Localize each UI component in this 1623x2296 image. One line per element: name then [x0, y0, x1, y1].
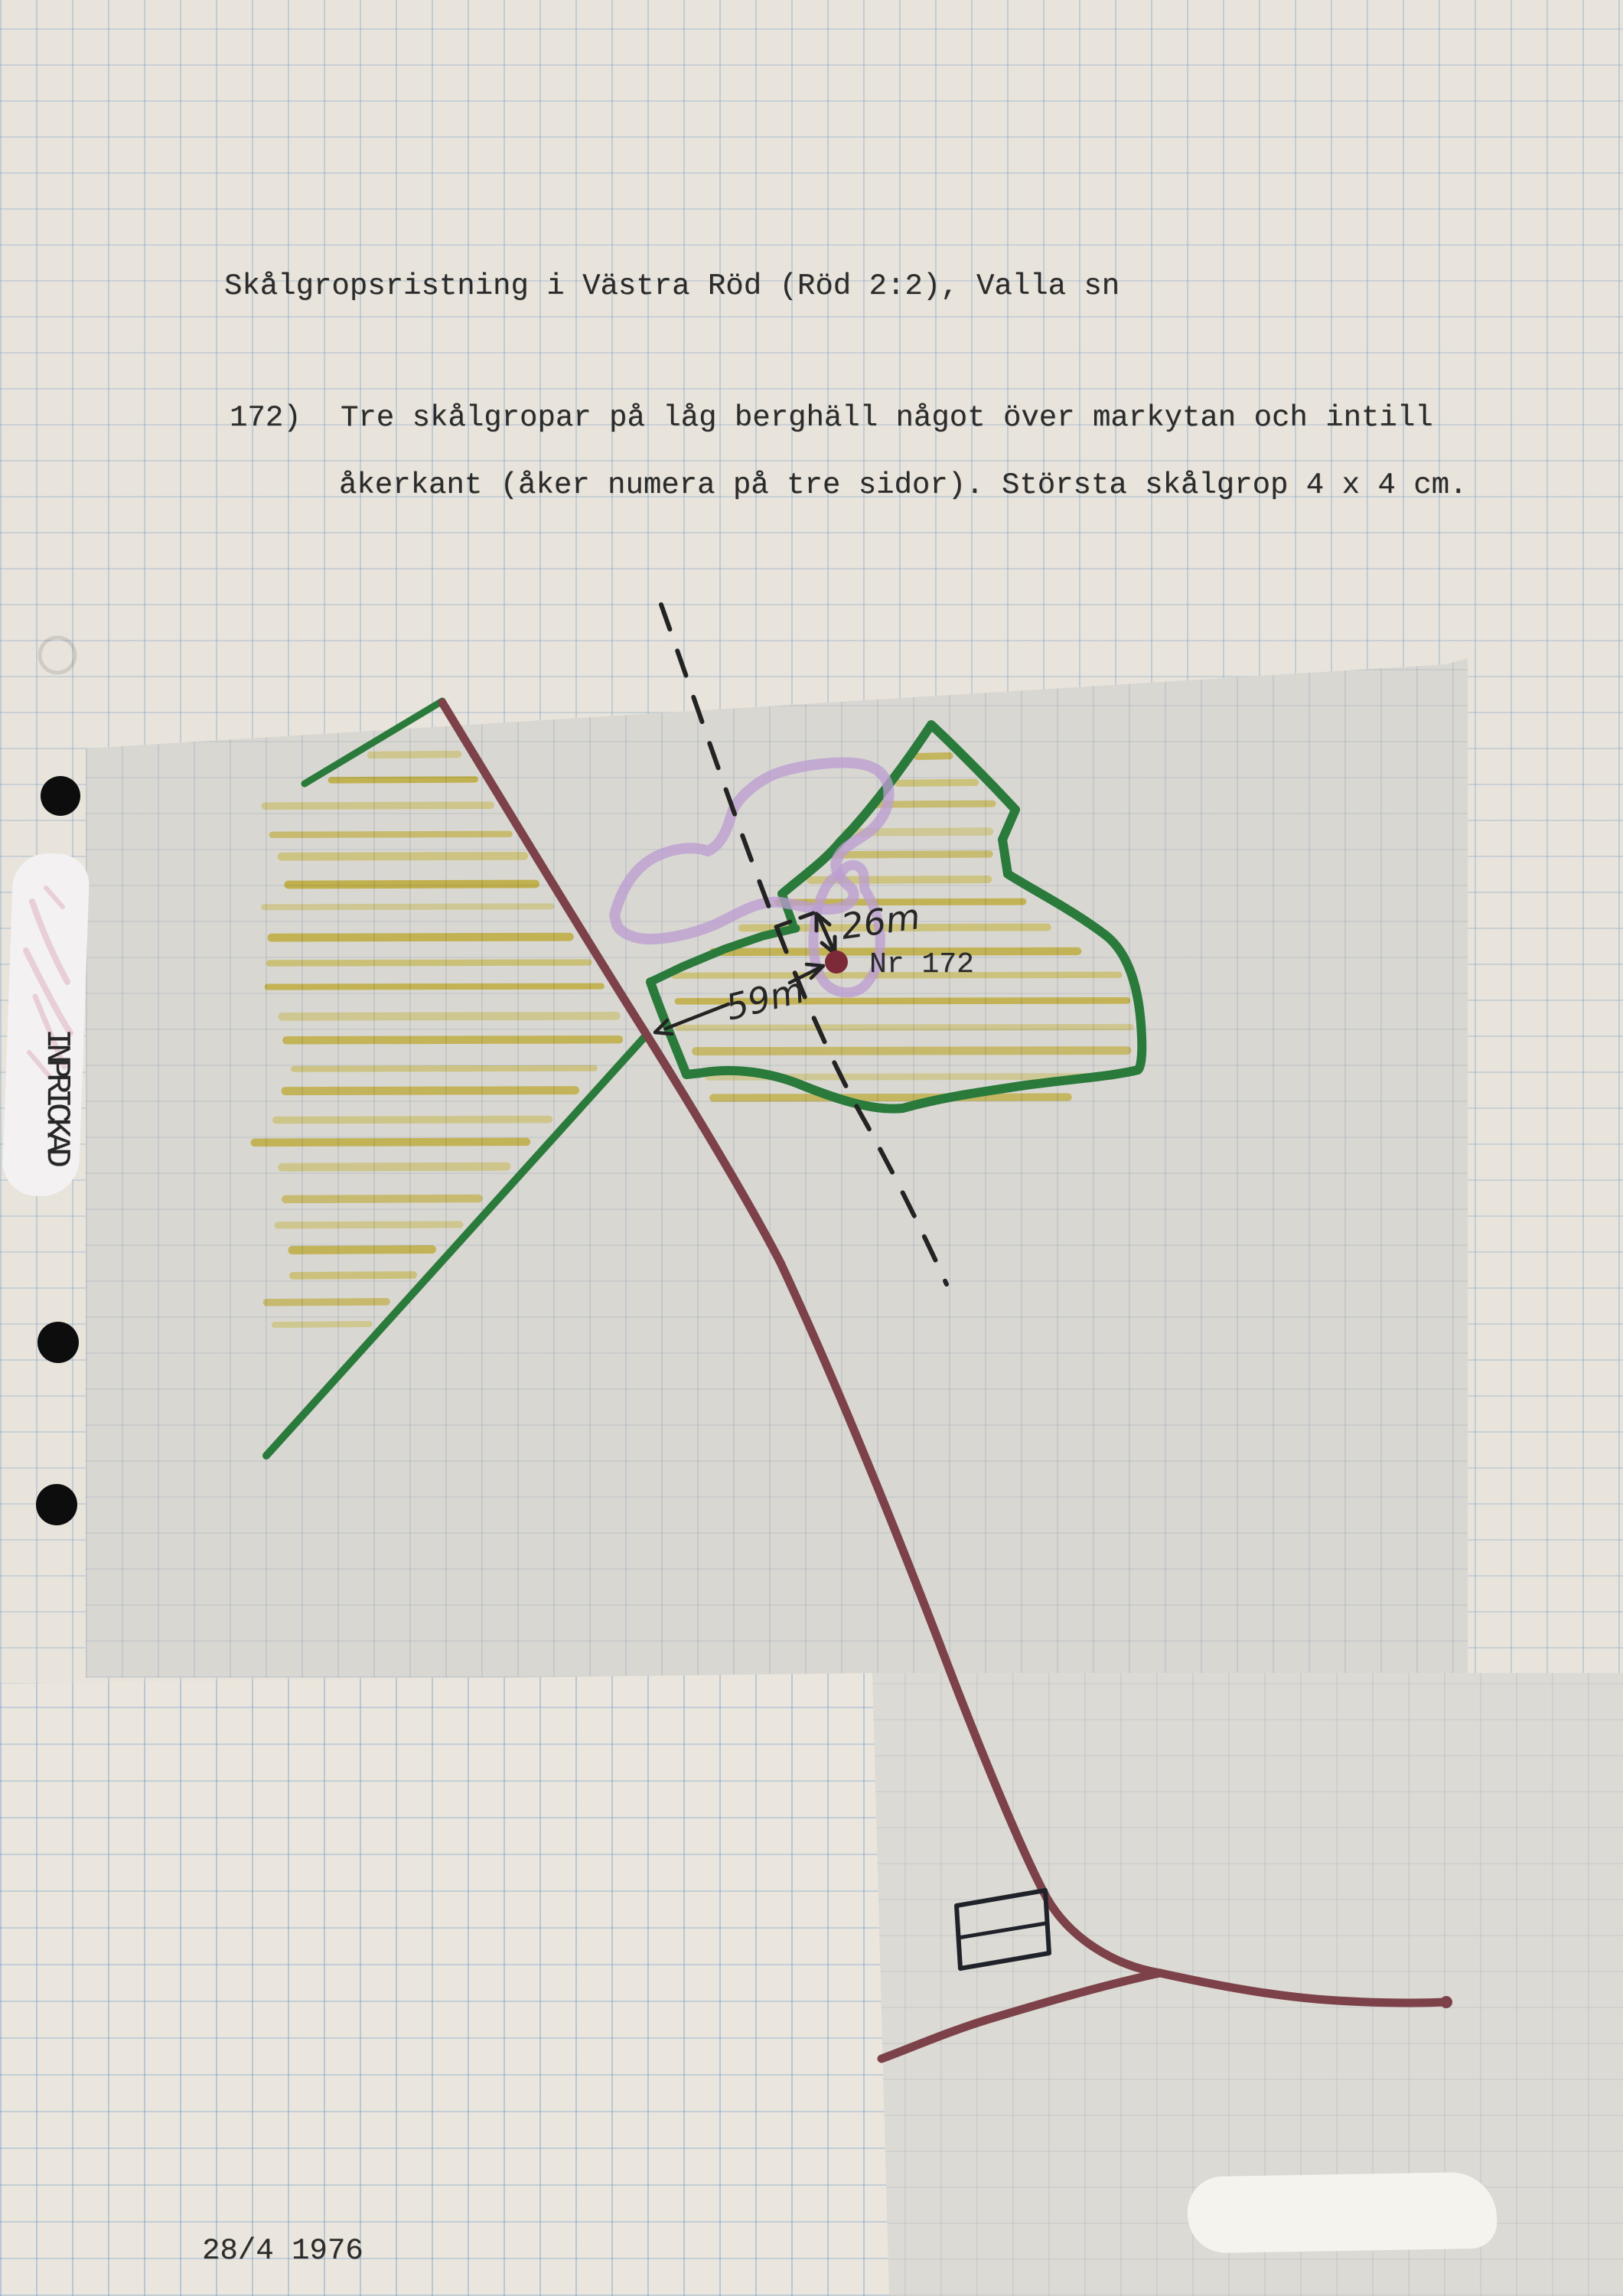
date-label: 28/4 1976 [202, 2236, 363, 2266]
entry-description-line2: åkerkant (åker numera på tre sidor). Stö… [339, 471, 1467, 501]
scanned-archive-page: Skålgropsristning i Västra Röd (Röd 2:2)… [0, 0, 1623, 2296]
entry-description-line1: Tre skålgropar på låg berghäll något öve… [341, 403, 1433, 433]
whiteout-patch [1187, 2171, 1498, 2253]
map-overlay-sheet [86, 658, 1468, 1678]
distance-label-26m: 26m [839, 899, 922, 944]
bottom-graph-sheet [0, 1673, 889, 2296]
page-title: Skålgropsristning i Västra Röd (Röd 2:2)… [224, 272, 1119, 302]
entry-number: 172) [230, 403, 301, 433]
site-number-label: Nr 172 [869, 950, 974, 980]
margin-stamp-inprickad: INPRICKAD [39, 1029, 74, 1163]
